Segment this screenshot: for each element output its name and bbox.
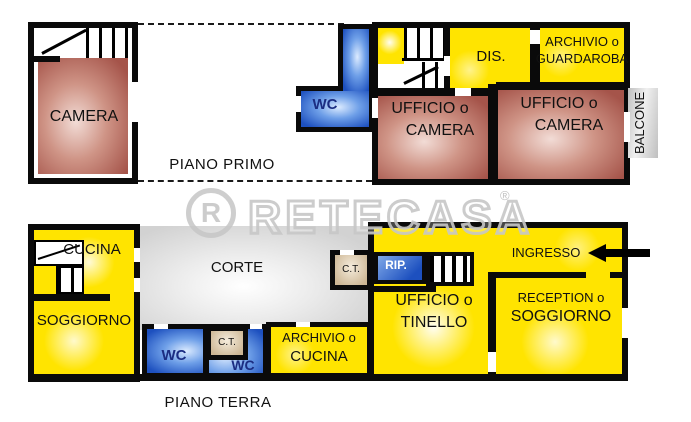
door-gap bbox=[340, 250, 354, 255]
wall bbox=[610, 272, 624, 278]
door-gap bbox=[134, 248, 140, 262]
court-label-corte: CORTE bbox=[211, 259, 263, 276]
room-label-ufficio-camera-left-1: UFFICIO o bbox=[391, 100, 468, 118]
door-gap bbox=[530, 30, 540, 44]
floor-label-upper: PIANO PRIMO bbox=[169, 156, 275, 173]
room-label-ct-upper: C.T. bbox=[342, 264, 360, 275]
wall bbox=[488, 84, 498, 179]
room-label-reception-1: RECEPTION o bbox=[518, 290, 605, 305]
door-gap bbox=[132, 82, 138, 122]
stairs-icon bbox=[422, 62, 444, 88]
watermark-text: RETECASA bbox=[248, 190, 533, 244]
room-label-cucina: CUCINA bbox=[63, 241, 121, 258]
room-label-balcone: BALCONE bbox=[632, 90, 647, 156]
room-label-ct-lower: C.T. bbox=[218, 337, 236, 348]
stairs-icon bbox=[426, 252, 474, 286]
door-gap bbox=[134, 278, 140, 292]
room-label-archivio-cucina-1: ARCHIVIO o bbox=[282, 330, 356, 345]
wall bbox=[378, 88, 496, 96]
floor-label-ground: PIANO TERRA bbox=[165, 394, 272, 411]
door-gap bbox=[488, 352, 496, 372]
door-gap bbox=[372, 98, 378, 118]
boundary-dashed-line bbox=[138, 23, 344, 25]
stairs-icon bbox=[86, 28, 128, 60]
door-gap bbox=[296, 96, 301, 112]
door-gap bbox=[154, 324, 168, 329]
room-label-ufficio-camera-right-1: UFFICIO o bbox=[520, 95, 597, 113]
entrance-label-ingresso: INGRESSO bbox=[512, 245, 581, 260]
room-label-soggiorno: SOGGIORNO bbox=[37, 312, 131, 329]
wall bbox=[34, 294, 110, 301]
room-label-ufficio-tinello-2: TINELLO bbox=[401, 314, 468, 332]
room-label-rip: RIP. bbox=[385, 258, 407, 272]
room-label-reception-2: SOGGIORNO bbox=[511, 308, 611, 326]
stairs-icon bbox=[404, 28, 444, 59]
room-label-camera: CAMERA bbox=[50, 108, 118, 126]
stair-landing bbox=[378, 28, 404, 64]
room-label-dis: DIS. bbox=[476, 48, 505, 65]
room-label-wc-left: WC bbox=[162, 347, 187, 364]
door-gap bbox=[296, 322, 310, 327]
door-gap bbox=[250, 324, 262, 329]
floor-plan: CAMERA PIANO PRIMO WC DIS. ARCHIVIO o GU… bbox=[0, 0, 691, 422]
stairs-divider-line bbox=[402, 58, 444, 61]
room-label-wc-upper: WC bbox=[313, 96, 338, 113]
room-label-ufficio-camera-left-2: CAMERA bbox=[406, 122, 474, 140]
wall bbox=[34, 56, 60, 62]
door-gap bbox=[455, 88, 471, 96]
wall bbox=[28, 374, 628, 381]
watermark-registered-mark: ® bbox=[500, 188, 510, 203]
room-label-ufficio-tinello-1: UFFICIO o bbox=[395, 292, 472, 310]
wall bbox=[496, 82, 624, 90]
door-gap bbox=[444, 56, 450, 76]
room-wc-upper-extension bbox=[338, 24, 374, 91]
room-label-archivio-guardaroba-1: ARCHIVIO o bbox=[545, 34, 619, 49]
room-label-wc-right: WC bbox=[231, 357, 254, 373]
watermark-logo: R bbox=[186, 188, 236, 238]
door-gap bbox=[622, 308, 628, 338]
room-label-archivio-guardaroba-2: GUARDAROBA bbox=[536, 51, 628, 66]
ingresso-arrow-tail bbox=[604, 249, 650, 257]
boundary-dashed-line bbox=[138, 180, 372, 182]
door-gap bbox=[624, 112, 630, 142]
wall bbox=[494, 272, 586, 278]
stairs-icon bbox=[56, 266, 84, 294]
room-label-archivio-cucina-2: CUCINA bbox=[290, 348, 348, 365]
room-label-ufficio-camera-right-2: CAMERA bbox=[535, 117, 603, 135]
